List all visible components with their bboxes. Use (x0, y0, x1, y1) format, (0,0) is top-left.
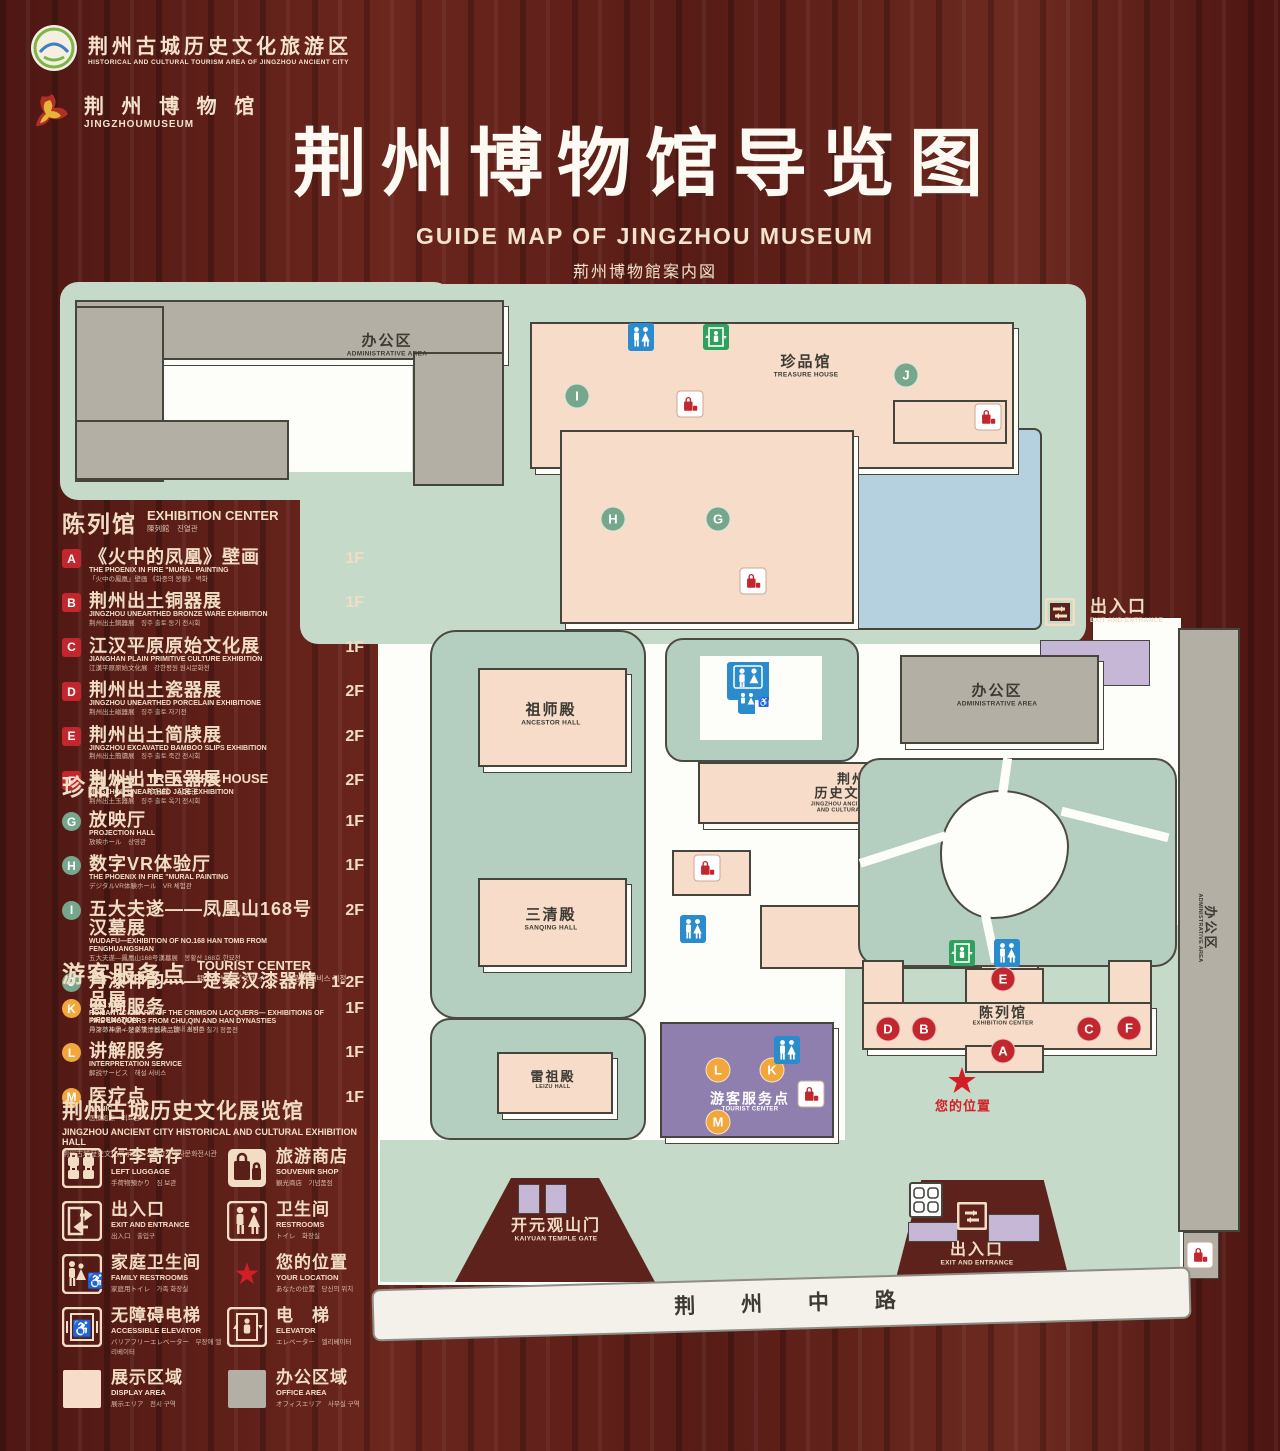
legend-badge-H: H (62, 856, 81, 875)
guide-map-poster: { "header": { "logo1": {"title": "荆州古城历史… (0, 0, 1280, 1451)
map-marker-F: F (1117, 1016, 1142, 1041)
legend-icon-row-family-restrooms: ♿ 家庭卫生间 FAMILY RESTROOMS 家庭用トイレ 가족 화장실 (62, 1254, 227, 1294)
south-gate-building (988, 1214, 1040, 1242)
map-marker-M: M (706, 1110, 731, 1135)
legend-section-header: 游客服务点 TOURIST CENTER 観光客サービスポイント 관광객 서비스… (62, 955, 364, 989)
restroom-sign-icon (680, 915, 706, 943)
section-title-en: TOURIST CENTER (197, 959, 346, 973)
office-area-icon (227, 1369, 267, 1409)
item-title-en: INTERPRETATION SERVICE (89, 1061, 182, 1070)
legend-section-header: 陈列馆 EXHIBITION CENTER 陳列館 진열관 (62, 505, 364, 539)
map-marker-L: L (706, 1058, 731, 1083)
left-luggage-sign-icon (909, 1182, 943, 1218)
restroom-sign-icon (628, 323, 654, 351)
legend-icon-row-souvenir-shop: 旅游商店 SOUVENIR SHOP 観光商店 기념품점 (227, 1148, 377, 1188)
item-title-en: JIANGHAN PLAIN PRIMITIVE CULTURE EXHIBIT… (89, 656, 262, 665)
item-title-sub: 江漢平原原始文化展 강한평원 원시문화전 (89, 665, 262, 673)
svg-text:♿: ♿ (758, 696, 769, 707)
legend-item-K: K 咨询服务 INFORMATION コンサルティングサービス 안내 서비스 1… (62, 998, 364, 1033)
svg-text:♿: ♿ (87, 1272, 102, 1290)
admin-area-label-center: 办公区 ADMINISTRATIVE AREA (957, 683, 1037, 707)
museum-logo-title: 荆 州 博 物 馆 (84, 90, 260, 119)
page-title-ja: 荊州博物館案内図 (250, 258, 1040, 282)
leizu-hall-label: 雷祖殿 LEIZU HALL (530, 1070, 575, 1090)
souvenir-shop-marker-icon (677, 391, 704, 418)
legend-item-I: I 五大夫遂——凤凰山168号汉墓展 WUDAFU—EXHIBITION OF … (62, 900, 364, 963)
legend-item-E: E 荆州出土简牍展 JINGZHOU EXCAVATED BAMBOO SLIP… (62, 726, 364, 761)
legend-icon-row-your-location: ★ 您的位置 YOUR LOCATION あなたの位置 당신의 위치 (227, 1254, 377, 1294)
page-title: 荆州博物馆导览图 (250, 104, 1040, 211)
ancestor-hall-label: 祖师殿 ANCESTOR HALL (521, 702, 580, 726)
item-title-sub: 荆州出土簡牘展 징주 출토 죽간 전시회 (89, 753, 267, 761)
map-marker-C: C (1077, 1017, 1102, 1042)
item-floor: 1F (345, 857, 364, 875)
item-floor: 1F (345, 1044, 364, 1062)
tourism-area-logo-subtitle: HISTORICAL AND CULTURAL TOURISM AREA OF … (88, 59, 352, 66)
map-marker-A: A (991, 1039, 1016, 1064)
tourism-area-logo-icon (30, 24, 78, 72)
family-restroom-sign-icon: ♿ (727, 662, 769, 714)
map-marker-H: H (601, 507, 626, 532)
souvenir-shop-marker-icon (1187, 1242, 1214, 1269)
legend-badge-B: B (62, 593, 81, 612)
item-floor: 1F (345, 1000, 364, 1018)
item-title-en: WUDAFU—EXHIBITION OF NO.168 HAN TOMB FRO… (89, 938, 330, 956)
item-title-sub: 荆州出土磁器展 징주 출토 자기전 (89, 709, 261, 717)
legend-badge-A: A (62, 549, 81, 568)
legend-icon-row-elevator: 电 梯 ELEVATOR エレベーター 엘리베이터 (227, 1307, 377, 1356)
item-floor: 2F (345, 902, 364, 920)
item-title-zh: 讲解服务 (89, 1042, 182, 1061)
museum-logo: 荆 州 博 物 馆 JINGZHOUMUSEUM (30, 88, 260, 132)
legend-section-header: 珍品馆 TREASURE HOUSE 珍品館 진품관 (62, 768, 364, 802)
kaiyuan-gate-pillar (518, 1184, 540, 1214)
item-floor: 1F (345, 639, 364, 657)
legend-badge-D: D (62, 682, 81, 701)
svg-text:♿: ♿ (72, 1319, 92, 1338)
legend-item-A: A 《火中的凤凰》壁画 THE PHOENIX IN FIRE "MURAL P… (62, 548, 364, 583)
restroom-sign-icon (994, 939, 1020, 967)
legend-badge-L: L (62, 1043, 81, 1062)
restrooms-icon (227, 1201, 267, 1241)
item-title-en: THE PHOENIX IN FIRE "MURAL PAINTING (89, 874, 229, 883)
legend-badge-E: E (62, 727, 81, 746)
item-title-zh: 江汉平原原始文化展 (89, 637, 262, 656)
section-title-sub: 珍品館 진품관 (147, 786, 268, 797)
item-title-en: PROJECTION HALL (89, 830, 155, 839)
legend-item-H: H 数字VR体验厅 THE PHOENIX IN FIRE "MURAL PAI… (62, 855, 364, 890)
section-title-zh: 珍品馆 (62, 768, 137, 802)
legend-badge-K: K (62, 999, 81, 1018)
item-title-zh: 荆州出土铜器展 (89, 592, 268, 611)
item-title-en: THE PHOENIX IN FIRE "MURAL PAINTING (89, 567, 260, 576)
legend-section-exhibition-center: 陈列馆 EXHIBITION CENTER 陳列館 진열관A 《火中的凤凰》壁画… (62, 505, 364, 806)
item-title-zh: 五大夫遂——凤凰山168号汉墓展 (89, 900, 330, 938)
item-title-sub: デジタルVR体験ホール VR 체험관 (89, 883, 229, 891)
section-title-zh: 陈列馆 (62, 505, 137, 539)
item-floor: 2F (345, 683, 364, 701)
elevator-sign-icon (949, 940, 975, 966)
legend-icon-row-display-area: 展示区域 DISPLAY AREA 展示エリア 전시 구역 (62, 1369, 227, 1409)
item-title-en: JINGZHOU UNEARTHED BRONZE WARE EXHIBITIO… (89, 611, 268, 620)
legend-icon-grid: 行李寄存 LEFT LUGGAGE 手荷物預かり 짐 보관 旅游商店 SOUVE… (62, 1148, 392, 1409)
item-title-sub: 荆州出土銅器展 징주 출토 동기 전시회 (89, 620, 268, 628)
exit-entrance-sign-icon (1045, 598, 1075, 626)
item-floor: 2F (345, 728, 364, 746)
admin-area-label-east: 办公区 ADMINISTRATIVE AREA (1197, 894, 1217, 963)
map-marker-E: E (991, 967, 1016, 992)
your-location-star-icon: ★ (946, 1063, 978, 1099)
museum-logo-icon (30, 88, 74, 132)
item-title-en: INFORMATION (89, 1017, 205, 1026)
item-floor: 1F (345, 550, 364, 568)
svg-text:★: ★ (234, 1258, 261, 1291)
legend-icon-row-left-luggage: 行李寄存 LEFT LUGGAGE 手荷物預かり 짐 보관 (62, 1148, 227, 1188)
legend-item-C: C 江汉平原原始文化展 JIANGHAN PLAIN PRIMITIVE CUL… (62, 637, 364, 672)
legend-icon-row-restrooms: 卫生间 RESTROOMS トイレ 화장실 (227, 1201, 377, 1241)
sanqing-hall-label: 三清殿 SANQING HALL (524, 907, 577, 931)
souvenir-shop-icon (227, 1148, 267, 1188)
poster-header: 荆州博物馆导览图 GUIDE MAP OF JINGZHOU MUSEUM 荊州… (250, 104, 1040, 308)
legend-badge-C: C (62, 638, 81, 657)
item-title-zh: 荆州出土简牍展 (89, 726, 267, 745)
legend-item-B: B 荆州出土铜器展 JINGZHOU UNEARTHED BRONZE WARE… (62, 592, 364, 627)
section-title-en: TREASURE HOUSE (147, 772, 268, 786)
kaiyuan-gate-label: 开元观山门 KAIYUAN TEMPLE GATE (511, 1218, 601, 1243)
item-floor: 1F (345, 594, 364, 612)
exit-entrance-icon (62, 1201, 102, 1241)
map-marker-B: B (912, 1017, 937, 1042)
map-marker-D: D (876, 1017, 901, 1042)
elevator-icon (227, 1307, 267, 1347)
legend-badge-G: G (62, 812, 81, 831)
legend-icon-row-exit-entrance: 出入口 EXIT AND ENTRANCE 出入口 출입구 (62, 1201, 227, 1241)
legend-item-G: G 放映厅 PROJECTION HALL 放映ホール 상영관 1F (62, 811, 364, 846)
legend-item-L: L 讲解服务 INTERPRETATION SERVICE 解説サービス 해설 … (62, 1042, 364, 1077)
admin-area-label-nw: 办公区 ADMINISTRATIVE AREA (347, 333, 427, 357)
elevator-sign-icon (703, 324, 729, 350)
item-title-sub: 「火中の鳳凰」壁画 《화중의 봉황》 벽화 (89, 576, 260, 584)
section-title-zh: 游客服务点 (62, 955, 187, 989)
item-title-zh: 放映厅 (89, 811, 155, 830)
tourism-area-logo-title: 荆州古城历史文化旅游区 (88, 30, 352, 59)
display-area-icon (62, 1369, 102, 1409)
accessible-elevator-icon: ♿ (62, 1307, 102, 1347)
map-marker-G: G (706, 507, 731, 532)
exhibition-center-label: 陈列馆 EXHIBITION CENTER (973, 1005, 1034, 1026)
section-title-sub: 陳列館 진열관 (147, 523, 278, 534)
page-title-en: GUIDE MAP OF JINGZHOU MUSEUM (250, 223, 1040, 250)
item-title-en: JINGZHOU UNEARTHED PORCELAIN EXHIBITIONE (89, 700, 261, 709)
family-restrooms-icon: ♿ (62, 1254, 102, 1294)
exit-entrance-sign-icon (957, 1202, 987, 1230)
museum-logo-subtitle: JINGZHOUMUSEUM (84, 119, 260, 130)
item-title-sub: コンサルティングサービス 안내 서비스 (89, 1026, 205, 1034)
souvenir-shop-marker-icon (975, 404, 1002, 431)
item-title-sub: 放映ホール 상영관 (89, 839, 155, 847)
left-luggage-icon (62, 1148, 102, 1188)
souvenir-shop-marker-icon (694, 855, 721, 882)
treasure-house-label: 珍品馆 TREASURE HOUSE (774, 354, 839, 378)
souvenir-shop-marker-icon (798, 1081, 825, 1108)
item-title-zh: 《火中的凤凰》壁画 (89, 548, 260, 567)
souvenir-shop-marker-icon (740, 568, 767, 595)
item-title-sub: 解説サービス 해설 서비스 (89, 1070, 182, 1078)
restroom-sign-icon (774, 1036, 800, 1064)
kaiyuan-gate-pillar (545, 1184, 567, 1214)
tourism-area-logo: 荆州古城历史文化旅游区 HISTORICAL AND CULTURAL TOUR… (30, 24, 352, 72)
map-marker-I: I (565, 384, 590, 409)
legend-badge-I: I (62, 901, 81, 920)
item-floor: 1F (345, 813, 364, 831)
section-title-sub: 観光客サービスポイント 관광객 서비스 지점 (197, 973, 346, 984)
legend-item-D: D 荆州出土瓷器展 JINGZHOU UNEARTHED PORCELAIN E… (62, 681, 364, 716)
legend-icon-row-office-area: 办公区域 OFFICE AREA オフィスエリア 사무실 구역 (227, 1369, 377, 1409)
admin-building-northwest-wing (75, 420, 289, 480)
your-location-icon: ★ (227, 1254, 267, 1294)
section-title-en: EXHIBITION CENTER (147, 509, 278, 523)
south-gate-building (908, 1222, 958, 1242)
item-title-zh: 咨询服务 (89, 998, 205, 1017)
legend-icon-row-accessible-elevator: ♿ 无障碍电梯 ACCESSIBLE ELEVATOR バリアフリーエレベーター… (62, 1307, 227, 1356)
map-marker-J: J (894, 363, 919, 388)
admin-building-northwest-wing (413, 352, 504, 486)
exit-label-north: 出入口 EXIT AND ENTRANCE (1090, 598, 1163, 624)
item-title-zh: 荆州出土瓷器展 (89, 681, 261, 700)
item-title-zh: 数字VR体验厅 (89, 855, 229, 874)
exit-label-south: 出入口 EXIT AND ENTRANCE (940, 1242, 1013, 1267)
